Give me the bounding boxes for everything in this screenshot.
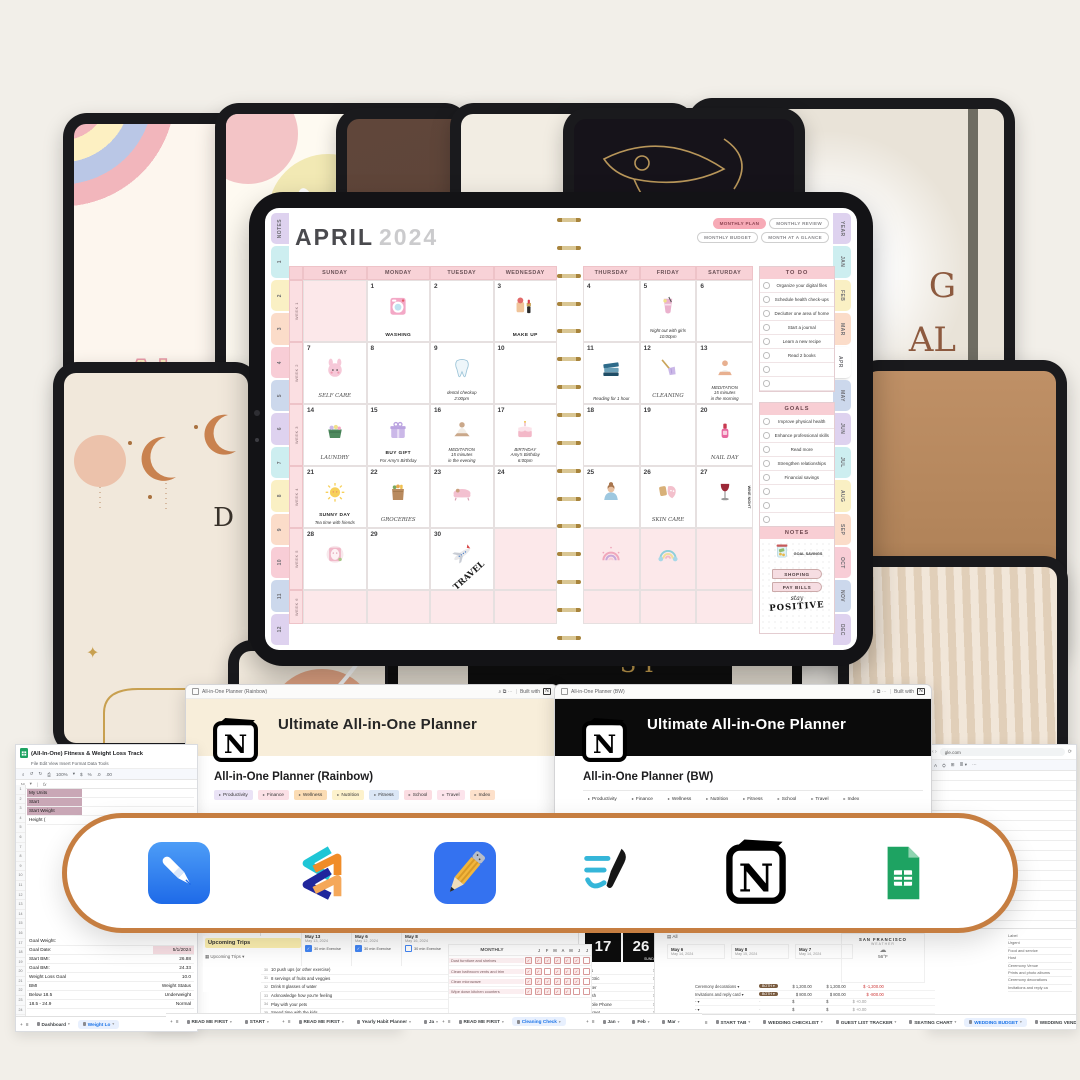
calendar-day-cell[interactable]: 8 — [367, 342, 431, 404]
calendar-day-cell[interactable]: 21SUNNY DAYTea time with friends — [303, 466, 367, 528]
planner-month-tabs-right: YEARJANFEBMARAPRMAYJUNJULAUGSEPOCTNOVDEC — [833, 208, 857, 650]
url-bar[interactable]: gle.com — [940, 748, 1065, 756]
cleaning-checkbox[interactable]: ✓ — [554, 968, 561, 975]
planner-button-monthly-budget[interactable]: MONTHLY BUDGET — [697, 232, 758, 243]
checkbox-circle-icon[interactable] — [763, 338, 770, 345]
month-tab-dec[interactable]: DEC — [833, 614, 851, 645]
tab-label: NOTES — [277, 219, 283, 238]
tab-label: JUN — [839, 423, 845, 434]
shopping-tag[interactable]: SHOPING — [772, 569, 822, 579]
sheet-tab-cleaning-check[interactable]: Cleaning Check▾ — [512, 1017, 566, 1026]
notes-title: NOTES — [760, 527, 834, 539]
notion-icon[interactable]: N — [719, 836, 793, 910]
noteful-icon[interactable] — [576, 842, 638, 904]
todo-item[interactable]: Learn a new recipe — [760, 335, 834, 349]
cleaning-checkbox[interactable]: ✓ — [554, 988, 561, 995]
month-tab-feb[interactable]: FEB — [833, 280, 851, 311]
calendar-day-cell[interactable] — [303, 280, 367, 342]
sidebar-tab-4[interactable]: 4 — [271, 347, 289, 378]
calendar-day-cell[interactable]: 28 — [303, 528, 367, 590]
banner-title: Ultimate All-in-One Planner — [278, 716, 477, 733]
calendar-day-cell[interactable] — [696, 528, 753, 590]
notion-toggle-finance[interactable]: ▸Finance — [627, 794, 658, 804]
goal-item[interactable]: Enhance professional skills — [760, 429, 834, 443]
spiral-ring — [557, 302, 581, 306]
side-list-item: Prints and photo albums — [1008, 970, 1072, 977]
notion-toggle-fitness[interactable]: ▸Fitness — [738, 794, 767, 804]
calendar-day-cell[interactable]: 13MEDITATION15 minutesin the morning — [696, 342, 753, 404]
calendar-day-cell[interactable]: 15BUY GIFTFor Amy's Birthday — [367, 404, 431, 466]
wedding-budget-row[interactable]: - ▾-$$$ +0.00 — [695, 999, 935, 1007]
day-number: 10 — [498, 345, 505, 352]
sheet-toolbar[interactable]: ⌕↺↻⎙100%▾$%.0.00 — [16, 768, 197, 780]
row-number: 23 — [16, 996, 25, 1006]
sidebar-tab-9[interactable]: 9 — [271, 514, 289, 545]
broom-sticker-icon — [657, 357, 679, 384]
sheet-row[interactable]: Goal Date:5/1/2024 — [27, 946, 194, 955]
cleaning-checkbox[interactable]: ✓ — [535, 978, 542, 985]
cleaning-checkbox[interactable] — [573, 988, 580, 995]
month-tab-may[interactable]: MAY — [833, 380, 851, 411]
day-header: WEDNESDAY — [494, 266, 558, 280]
day-number: 13 — [700, 345, 707, 352]
calendar-day-cell[interactable]: 22GROCERIES — [367, 466, 431, 528]
calendar-day-cell[interactable]: 4 — [583, 280, 640, 342]
spiral-ring — [557, 497, 581, 501]
sheet-toolbar[interactable]: A⛭⊞≣ ▾⋯ — [928, 759, 1076, 771]
notion-toggle-wellness[interactable]: ▸Wellness — [663, 794, 696, 804]
notion-toggle-school[interactable]: ▸School — [773, 794, 802, 804]
sheet-tab-seating-chart[interactable]: SEATING CHART▾ — [904, 1018, 961, 1027]
row-number: 5 — [16, 823, 25, 833]
all-sheets-button[interactable]: ≡ — [176, 1019, 179, 1024]
sheet-tab-jan[interactable]: Jan▾ — [598, 1017, 625, 1026]
sheet-tab-read-me-first[interactable]: READ ME FIRST▾ — [182, 1017, 237, 1026]
product-collage: AL PLA — [0, 0, 1080, 1080]
built-with-label[interactable]: Built with — [894, 689, 914, 695]
checkbox-circle-icon[interactable] — [763, 380, 770, 387]
cleaning-checkbox[interactable]: ✓ — [573, 968, 580, 975]
sidebar-tab-6[interactable]: 6 — [271, 413, 289, 444]
tab-label: FEB — [839, 290, 845, 301]
all-sheets-button[interactable]: ≡ — [448, 1019, 451, 1024]
sheet-cells[interactable]: Goal Weight:Goal Date:5/1/2024Start BMI:… — [27, 937, 194, 1009]
sheet-tab-wedding-vendors[interactable]: WEDDING VENDORS▾ — [1030, 1018, 1076, 1027]
all-sheets-button[interactable]: ≡ — [705, 1020, 708, 1025]
google-sheets-icon[interactable] — [874, 844, 932, 902]
sheet-row[interactable]: Below 18.5Underweight — [27, 991, 194, 1000]
day-header: MONDAY — [367, 266, 431, 280]
calendar-day-cell[interactable]: 2 — [430, 280, 494, 342]
goal-item[interactable]: Improve physical health — [760, 415, 834, 429]
tab-label: 10 — [277, 559, 283, 565]
day-number: 26 — [644, 469, 651, 476]
day-label: WASHING — [368, 333, 430, 338]
cleaning-checkbox[interactable] — [583, 957, 590, 964]
add-sheet-button[interactable]: + — [586, 1019, 589, 1024]
tab-label: 2 — [277, 294, 283, 297]
sheet-menubar[interactable]: File Edit View Insert Format Data Tools — [16, 760, 197, 768]
row-number: 21 — [16, 977, 25, 987]
pay-bills-tag[interactable]: PAY BILLS — [772, 582, 822, 592]
exercise-checkbox[interactable]: ✓ — [355, 945, 362, 952]
month-tab-sep[interactable]: SEP — [833, 514, 851, 545]
sidebar-tab-12[interactable]: 12 — [271, 614, 289, 645]
sheet-row[interactable]: Weight Loss Goal10.0 — [27, 973, 194, 982]
cleaning-checkbox[interactable]: ✓ — [564, 988, 571, 995]
spiral-ring — [557, 636, 581, 640]
notion-toggle-productivity[interactable]: ▸Productivity — [583, 794, 622, 804]
checkbox-circle-icon[interactable] — [763, 296, 770, 303]
all-sheets-button[interactable]: ≡ — [26, 1022, 29, 1027]
side-list-item: Host — [1008, 955, 1072, 962]
calendar-week-row — [583, 528, 753, 590]
checkbox-circle-icon[interactable] — [763, 460, 770, 467]
notion-toggle-nutrition[interactable]: ▸Nutrition — [701, 794, 733, 804]
calendar-day-cell[interactable] — [640, 590, 697, 624]
goal-item[interactable]: Read more — [760, 443, 834, 457]
tab-label: MAR — [839, 323, 845, 336]
cover-title-partial: G AL — [909, 259, 956, 368]
svg-text:N: N — [224, 730, 247, 760]
notion-toggle-index[interactable]: ▸Index — [470, 790, 496, 800]
cleaning-checkbox[interactable]: ✓ — [525, 968, 532, 975]
cleaning-checkbox[interactable]: ✓ — [573, 978, 580, 985]
sheet-tabbar: +≡READ ME FIRST▾Cleaning Check▾ — [438, 1013, 598, 1029]
notion-toggle-fitness[interactable]: ▸Fitness — [369, 790, 398, 800]
calendar-day-cell[interactable]: 19 — [640, 404, 697, 466]
camera-flash-icon — [255, 438, 259, 442]
calendar-day-cell[interactable]: 14LAUNDRY — [303, 404, 367, 466]
checkbox-circle-icon[interactable] — [763, 432, 770, 439]
todo-item[interactable]: Read 2 books — [760, 349, 834, 363]
window-title: All-in-One Planner (BW) — [571, 689, 625, 695]
laundry-sticker-icon — [324, 419, 346, 446]
day-label-script: CLEANING — [641, 393, 696, 399]
goal-item[interactable] — [760, 513, 834, 527]
notion-toggle-travel[interactable]: ▸Travel — [437, 790, 464, 800]
calendar-day-cell[interactable]: 30TRAVEL — [430, 528, 494, 590]
exercise-checkbox[interactable]: ✓ — [305, 945, 312, 952]
sheet-tab-feb[interactable]: Feb▾ — [627, 1017, 654, 1026]
cleaning-checkbox[interactable] — [583, 988, 590, 995]
calendar-day-cell[interactable]: 9dental checkup2:00pm — [430, 342, 494, 404]
xodo-icon[interactable] — [291, 842, 353, 904]
weather-card: SAN FRANCISCO WEATHER ☁ 56°F — [841, 933, 925, 983]
notion-toggle-nutrition[interactable]: ▸Nutrition — [332, 790, 364, 800]
calendar-day-cell[interactable]: 6 — [696, 280, 753, 342]
calendar-day-cell[interactable]: 16MEDITATION15 minutesin the evening — [430, 404, 494, 466]
tab-label: MAY — [839, 390, 845, 402]
todo-item[interactable]: Organize your digital files — [760, 279, 834, 293]
calendar-day-cell[interactable]: 1WASHING — [367, 280, 431, 342]
calendar-day-cell[interactable] — [583, 528, 640, 590]
day-number: 19 — [644, 407, 651, 414]
calendar-day-cell[interactable]: 3MAKE UP — [494, 280, 558, 342]
tab-label: APR — [837, 356, 843, 368]
spiral-ring — [557, 580, 581, 584]
trips-toggle[interactable]: ▦ Upcoming Trips ▾ — [205, 954, 301, 960]
sheet-tab-start[interactable]: START▾ — [240, 1017, 274, 1026]
cleaning-checkbox[interactable]: ✓ — [535, 988, 542, 995]
calendar-day-cell[interactable]: 20NAIL DAY — [696, 404, 753, 466]
window-controls[interactable]: ⌕ ⧉ ⋯ — [873, 689, 887, 695]
woman-sticker-icon — [600, 481, 622, 508]
cleaning-checkbox[interactable]: ✓ — [525, 978, 532, 985]
calendar-day-cell[interactable]: 29 — [367, 528, 431, 590]
sidebar-tab-11[interactable]: 11 — [271, 580, 289, 611]
notability-icon[interactable] — [434, 842, 496, 904]
calendar-day-cell[interactable] — [494, 590, 558, 624]
sheet-tabbar: +≡START TAB▾WEDDING CHECKLIST▾GUEST LIST… — [655, 1014, 1076, 1029]
checkbox-circle-icon[interactable] — [763, 366, 770, 373]
sidebar-tab-7[interactable]: 7 — [271, 447, 289, 478]
trips-header: Upcoming Trips — [205, 938, 301, 948]
calendar-day-cell[interactable] — [367, 590, 431, 624]
planner-button-monthly-review[interactable]: MONTHLY REVIEW — [769, 218, 829, 229]
day-number: 5 — [644, 283, 648, 290]
cleaning-checkbox[interactable] — [583, 968, 590, 975]
todo-item[interactable]: Schedule health check-ups — [760, 293, 834, 307]
sheet-tab-yearly-habit-planner[interactable]: Yearly Habit Planner▾ — [352, 1017, 416, 1026]
sheet-tab-read-me-first[interactable]: READ ME FIRST▾ — [294, 1017, 349, 1026]
notion-toggle-index[interactable]: ▸Index — [839, 794, 865, 804]
checkbox-circle-icon[interactable] — [763, 488, 770, 495]
notion-toggle-productivity[interactable]: ▸Productivity — [214, 790, 253, 800]
month-tab-aug[interactable]: AUG — [833, 480, 851, 511]
checkbox-circle-icon[interactable] — [763, 474, 770, 481]
cleaning-checkbox[interactable]: ✓ — [535, 957, 542, 964]
calendar-day-cell[interactable]: 25 — [583, 466, 640, 528]
add-sheet-button[interactable]: + — [20, 1022, 23, 1027]
gold-star: ✦ — [86, 643, 99, 663]
planner-button-month-at-a-glance[interactable]: MONTH AT A GLANCE — [761, 232, 829, 243]
notion-toggle-travel[interactable]: ▸Travel — [806, 794, 833, 804]
day-note: Reading for 1 hour — [585, 396, 638, 402]
item-label: Declutter one area of home — [773, 311, 832, 316]
goal-item[interactable]: Strengthen relationships — [760, 457, 834, 471]
month-tab-jul[interactable]: JUL — [833, 447, 851, 478]
spiral-ring — [557, 608, 581, 612]
notion-toggle-row: ▸Productivity▸Finance▸Wellness▸Nutrition… — [583, 790, 923, 804]
cleaning-checkbox[interactable]: ✓ — [564, 957, 571, 964]
sheet-row[interactable]: Goal BMI:24.33 — [27, 964, 194, 973]
calendar-day-cell[interactable]: 18 — [583, 404, 640, 466]
row-number: 12 — [16, 891, 25, 901]
monthly-header: MONTHLY — [449, 948, 535, 953]
compatible-apps-pill: N — [62, 813, 1018, 933]
sidebar-tab-notes[interactable]: NOTES — [271, 213, 289, 244]
sheet-grid-row — [928, 781, 1076, 791]
checkbox-circle-icon[interactable] — [763, 310, 770, 317]
goodnotes-icon[interactable] — [148, 842, 210, 904]
calendar-week-row: WEEK 314LAUNDRY15BUY GIFTFor Amy's Birth… — [289, 404, 557, 466]
todo-item[interactable] — [760, 363, 834, 377]
sheet-row[interactable]: Start BMI:26.88 — [27, 955, 194, 964]
checkbox-circle-icon[interactable] — [763, 282, 770, 289]
sheet-tab-read-me-first[interactable]: READ ME FIRST▾ — [454, 1017, 509, 1026]
add-sheet-button[interactable]: + — [170, 1019, 173, 1024]
calendar-day-cell[interactable]: 24 — [494, 466, 558, 528]
exercise-checkbox[interactable] — [405, 945, 412, 952]
cleaning-checkbox[interactable]: ✓ — [564, 968, 571, 975]
day-label-script: GROCERIES — [368, 517, 430, 523]
checkbox-circle-icon[interactable] — [763, 446, 770, 453]
window-controls[interactable]: ⌕ ⧉ ⋯ — [499, 689, 513, 695]
add-sheet-button[interactable]: + — [442, 1019, 445, 1024]
sidebar-tab-8[interactable]: 8 — [271, 480, 289, 511]
sidebar-tab-5[interactable]: 5 — [271, 380, 289, 411]
cleaning-checkbox[interactable]: ✓ — [544, 988, 551, 995]
planner-screen: NOTES123456789101112 YEARJANFEBMARAPRMAY… — [265, 208, 857, 650]
checkbox-circle-icon[interactable] — [763, 418, 770, 425]
month-tab-nov[interactable]: NOV — [833, 580, 851, 611]
sheet-tab-wedding-budget[interactable]: WEDDING BUDGET▾ — [964, 1018, 1027, 1027]
day-number: 21 — [307, 469, 314, 476]
sheet-tab-start-tab[interactable]: START TAB▾ — [711, 1018, 756, 1027]
sheet-row[interactable]: Start — [27, 798, 194, 807]
week-label: WEEK 4 — [289, 466, 303, 528]
calendar-day-cell[interactable]: 27WINE NIGHT — [696, 466, 753, 528]
month-tab-year[interactable]: YEAR — [833, 213, 851, 244]
checkbox-circle-icon[interactable] — [763, 324, 770, 331]
calendar-day-cell[interactable] — [640, 528, 697, 590]
month-tab-oct[interactable]: OCT — [833, 547, 851, 578]
cleaning-checkbox[interactable]: ✓ — [564, 978, 571, 985]
calendar-day-cell[interactable] — [583, 590, 640, 624]
calendar-day-cell[interactable]: 5Night out with girls10:00pm — [640, 280, 697, 342]
spiral-ring — [557, 469, 581, 473]
sidebar-tab-2[interactable]: 2 — [271, 280, 289, 311]
calendar-day-cell[interactable] — [494, 528, 558, 590]
notion-toggle-school[interactable]: ▸School — [404, 790, 433, 800]
cleaning-checkbox[interactable]: ✓ — [525, 957, 532, 964]
all-sheets-button[interactable]: ≡ — [592, 1019, 595, 1024]
calendar-day-cell[interactable]: 23 — [430, 466, 494, 528]
day-label: MAKE UP — [495, 333, 557, 338]
sheet-tab-dashboard[interactable]: Dashboard▾ — [32, 1020, 75, 1029]
day-number: 3 — [498, 283, 502, 290]
filter-chip[interactable]: ▤ All — [667, 934, 677, 940]
wedding-date-card: May 8May 15, 2024 — [731, 944, 789, 959]
sheet-tab-guest-list-tracker[interactable]: GUEST LIST TRACKER▾ — [831, 1018, 902, 1027]
cleaning-checkbox[interactable] — [544, 968, 551, 975]
calendar-week-row: WEEK 6 — [289, 590, 557, 624]
calendar-day-cell[interactable] — [696, 590, 753, 624]
spiral-ring — [557, 413, 581, 417]
cover-letter: D — [213, 503, 234, 533]
day-header-row: SUNDAYMONDAYTUESDAYWEDNESDAY — [289, 266, 557, 280]
day-header: TUESDAY — [430, 266, 494, 280]
spiral-ring — [557, 552, 581, 556]
rainbowpink-sticker-icon — [600, 543, 622, 570]
cleaning-checkbox[interactable]: ✓ — [535, 968, 542, 975]
todo-item[interactable]: Declutter one area of home — [760, 307, 834, 321]
todo-item[interactable] — [760, 377, 834, 391]
month-tab-mar[interactable]: MAR — [833, 313, 851, 344]
wedding-date-cards: May 6May 14, 2024May 8May 15, 2024May 7M… — [667, 944, 853, 959]
weather-icon: ☁ — [842, 946, 924, 954]
built-with-label[interactable]: Built with — [520, 689, 540, 695]
cleaning-checkbox[interactable]: ✓ — [573, 957, 580, 964]
calendar-day-cell[interactable]: 11Reading for 1 hour — [583, 342, 640, 404]
week-label: WEEK 2 — [289, 342, 303, 404]
tab-label: 11 — [277, 593, 283, 599]
formula-bar[interactable]: M▾|fx — [16, 780, 197, 789]
calendar-day-cell[interactable]: 10 — [494, 342, 558, 404]
sheet-row[interactable]: Goal Weight: — [27, 937, 194, 946]
calendar-day-cell[interactable]: 26SKIN CARE — [640, 466, 697, 528]
calendar-day-cell[interactable] — [430, 590, 494, 624]
month-tab-jun[interactable]: JUN — [833, 413, 851, 444]
day-number: 29 — [371, 531, 378, 538]
calendar-week-row: 11Reading for 1 hour12CLEANING13MEDITATI… — [583, 342, 753, 404]
sidebar-tab-3[interactable]: 3 — [271, 313, 289, 344]
all-sheets-button[interactable]: ≡ — [288, 1019, 291, 1024]
sheet-row[interactable]: My Units — [27, 789, 194, 798]
todo-item[interactable]: Start a journal — [760, 321, 834, 335]
goal-item[interactable]: Financial savings — [760, 471, 834, 485]
wedding-budget-row[interactable]: Ceremony decorations ▾BOTH ▾$ 1,200.00$ … — [695, 983, 935, 991]
notion-toggle-finance[interactable]: ▸Finance — [258, 790, 289, 800]
cleaning-checkbox[interactable]: ✓ — [544, 978, 551, 985]
wedding-budget-row[interactable]: Invitations and reply card ▾BOTH ▾$ 800.… — [695, 991, 935, 999]
calendar-day-cell[interactable]: 17BIRTHDAYAmy's Birthday6:00pm — [494, 404, 558, 466]
day-label: SUNNY DAY — [304, 513, 366, 518]
sheet-tab-mar[interactable]: Mar▾ — [657, 1017, 684, 1026]
cleaning-checkbox[interactable]: ✓ — [554, 978, 561, 985]
calendar-week-row: WEEK 11WASHING23MAKE UP — [289, 280, 557, 342]
sheet-row[interactable]: BMIWeight Status — [27, 982, 194, 991]
goal-item[interactable] — [760, 485, 834, 499]
notion-toggle-wellness[interactable]: ▸Wellness — [294, 790, 327, 800]
day-label-script: NAIL DAY — [697, 455, 752, 461]
calendar-day-cell[interactable]: 7SELF CARE — [303, 342, 367, 404]
side-list-item: Urgent — [1008, 940, 1072, 947]
goal-item[interactable] — [760, 499, 834, 513]
sheet-tab-wedding-checklist[interactable]: WEDDING CHECKLIST▾ — [758, 1018, 828, 1027]
sidebar-tab-10[interactable]: 10 — [271, 547, 289, 578]
checkbox-circle-icon[interactable] — [763, 352, 770, 359]
sheet-row[interactable]: 18.5 - 24.9Normal — [27, 1000, 194, 1009]
groceries-sticker-icon — [387, 481, 409, 508]
checkbox-circle-icon[interactable] — [763, 516, 770, 523]
notion-mini-logo: N — [917, 688, 925, 695]
cleaning-checkbox[interactable]: ✓ — [544, 957, 551, 964]
month-tab-jan[interactable]: JAN — [833, 246, 851, 277]
calendar-day-cell[interactable] — [303, 590, 367, 624]
cleaning-checkbox[interactable]: ✓ — [554, 957, 561, 964]
selfcare-sticker-icon — [324, 357, 346, 384]
week-label: WEEK 3 — [289, 404, 303, 466]
notes-body[interactable]: GOAL SAVINGS SHOPING PAY BILLS stay POSI… — [760, 541, 834, 633]
monthly-cleaning-card: MONTHLYJFMAMJJDust furniture and shelves… — [448, 944, 592, 1016]
cleaning-checkbox[interactable]: ✓ — [525, 988, 532, 995]
checkbox-circle-icon[interactable] — [763, 502, 770, 509]
weather-temp: 56°F — [842, 954, 924, 959]
calendar-day-cell[interactable]: 12CLEANING — [640, 342, 697, 404]
tab-label: 8 — [277, 494, 283, 497]
add-sheet-button[interactable]: + — [282, 1019, 285, 1024]
sheet-tab-weight-lo[interactable]: Weight Lo▾ — [78, 1020, 119, 1029]
row-number: 8 — [16, 852, 25, 862]
day-number: 17 — [498, 407, 505, 414]
day-label-script: LAUNDRY — [304, 455, 366, 461]
row-number: 14 — [16, 910, 25, 920]
sidebar-tab-1[interactable]: 1 — [271, 246, 289, 277]
cleaning-checkbox[interactable] — [583, 978, 590, 985]
planner-button-monthly-plan[interactable]: MONTHLY PLAN — [713, 218, 767, 229]
